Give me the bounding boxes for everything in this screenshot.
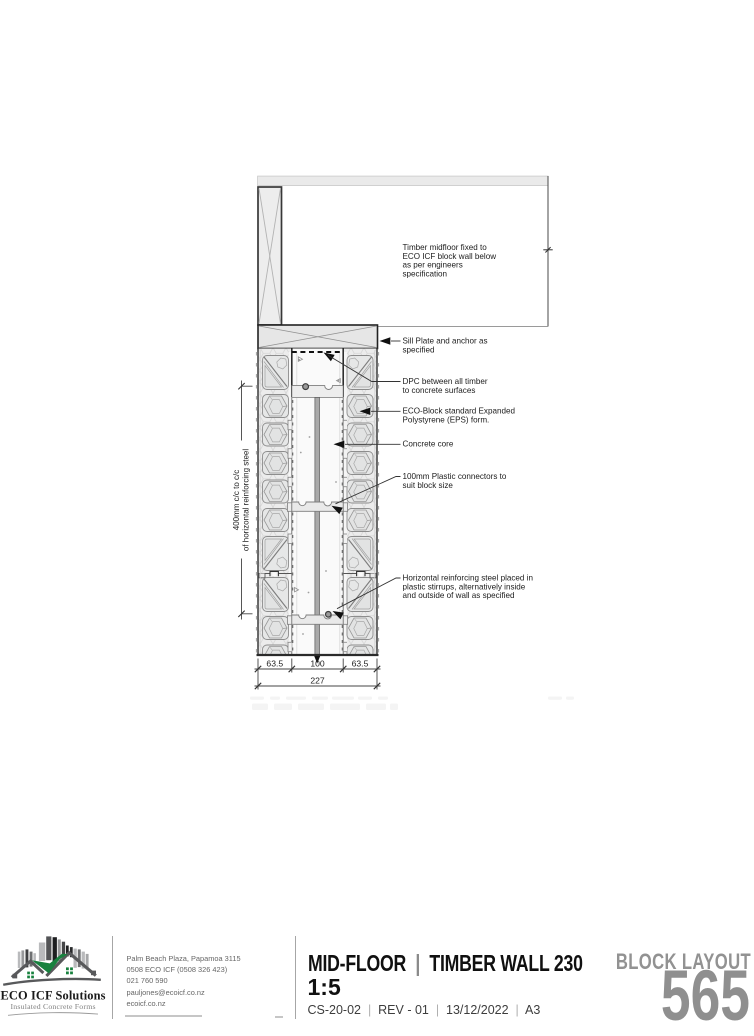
- svg-text:Concrete core: Concrete core: [403, 440, 454, 449]
- svg-text:100mm Plastic connectors tosui: 100mm Plastic connectors tosuit block si…: [403, 472, 507, 490]
- svg-text:63.5: 63.5: [352, 659, 369, 669]
- svg-text:ECO-Block standard ExpandedPol: ECO-Block standard ExpandedPolystyrene (…: [403, 407, 515, 425]
- svg-text:Sill Plate and anchor asspecif: Sill Plate and anchor asspecified: [403, 336, 488, 354]
- svg-text:227: 227: [310, 676, 325, 686]
- svg-text:100: 100: [310, 659, 325, 669]
- svg-text:ECO ICF Solutions: ECO ICF Solutions: [1, 989, 106, 1003]
- svg-text:Timber midfloor fixed toECO IC: Timber midfloor fixed toECO ICF block wa…: [403, 243, 497, 279]
- svg-text:of horizontal reinforcing stee: of horizontal reinforcing steel: [242, 449, 251, 552]
- svg-text:Insulated Concrete Forms: Insulated Concrete Forms: [11, 1002, 96, 1011]
- svg-text:400mm c/c to c/c: 400mm c/c to c/c: [232, 470, 241, 530]
- svg-text:63.5: 63.5: [266, 659, 283, 669]
- svg-text:DPC between all timberto concr: DPC between all timberto concrete surfac…: [403, 377, 488, 395]
- svg-text:Horizontal reinforcing steel p: Horizontal reinforcing steel placed inpl…: [403, 573, 533, 600]
